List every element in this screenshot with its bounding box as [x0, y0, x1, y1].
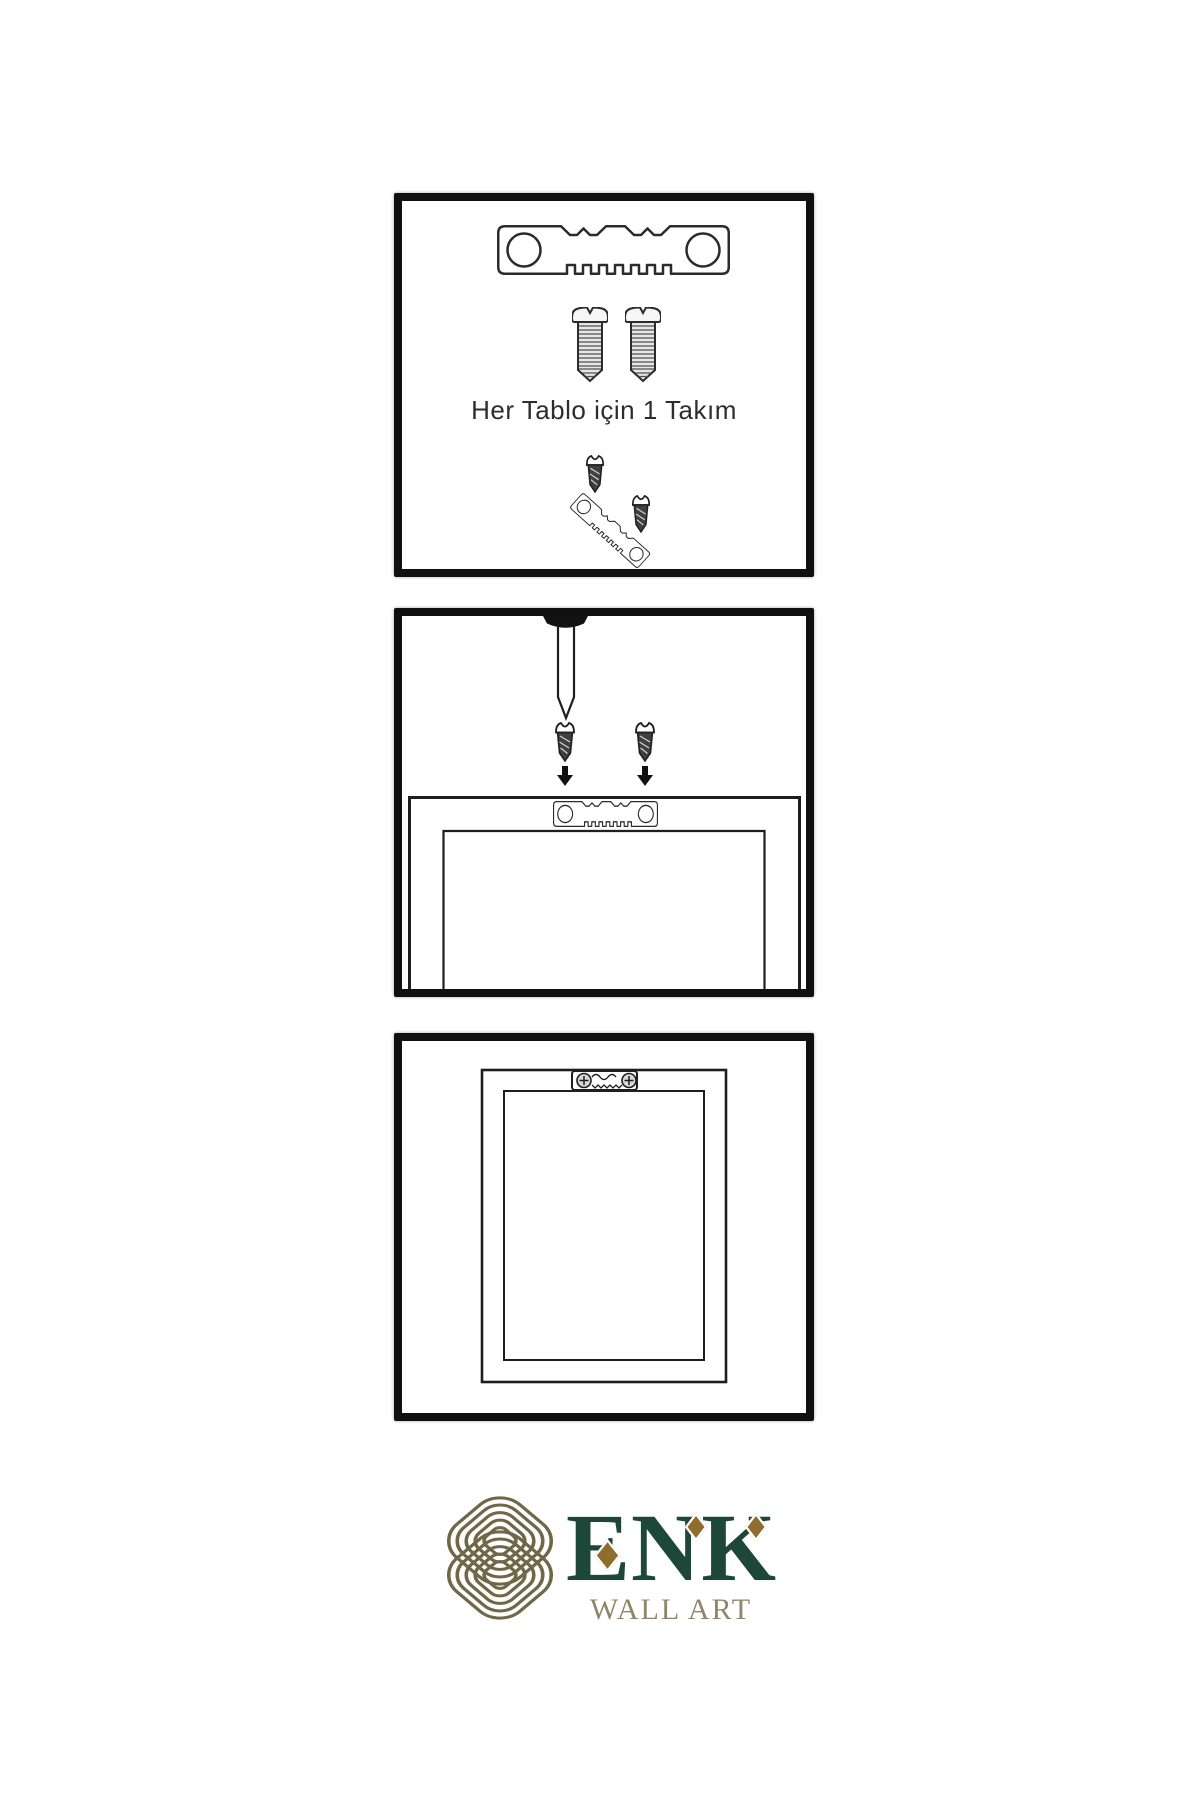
frame-back-inner-outline [444, 831, 765, 989]
dark-screw-icon [587, 456, 603, 492]
step-2-drawing [402, 616, 806, 989]
brand-tagline: WALL ART [566, 1593, 776, 1627]
kit-caption: Her Tablo için 1 Takım [402, 395, 806, 426]
dark-screw-icon [633, 496, 649, 532]
panel-step-1-hardware-kit: Her Tablo için 1 Takım [394, 193, 814, 577]
frame-back-outer-outline [482, 1070, 726, 1382]
nail-head [543, 616, 588, 628]
step-3-drawing [402, 1041, 806, 1413]
down-arrow-icon [637, 766, 653, 786]
dark-screw-icon [556, 723, 574, 761]
nail-icon [558, 616, 574, 718]
panel-step-3-frame-mounted [394, 1033, 814, 1421]
screw-icon [572, 308, 608, 382]
down-arrow-icon [557, 766, 573, 786]
dark-screw-icon [636, 723, 654, 761]
panel-step-2-wall-installation [394, 608, 814, 997]
step-1-drawing [402, 201, 806, 569]
mounted-sawtooth-hanger-icon [572, 1071, 637, 1090]
knot-logo-icon [437, 1488, 563, 1628]
sawtooth-hanger-icon [498, 226, 729, 274]
brand-wordmark: ENK [566, 1500, 776, 1596]
screw-icon [625, 308, 661, 382]
sawtooth-hanger-icon [554, 802, 658, 827]
frame-back-inner-outline [504, 1091, 704, 1360]
